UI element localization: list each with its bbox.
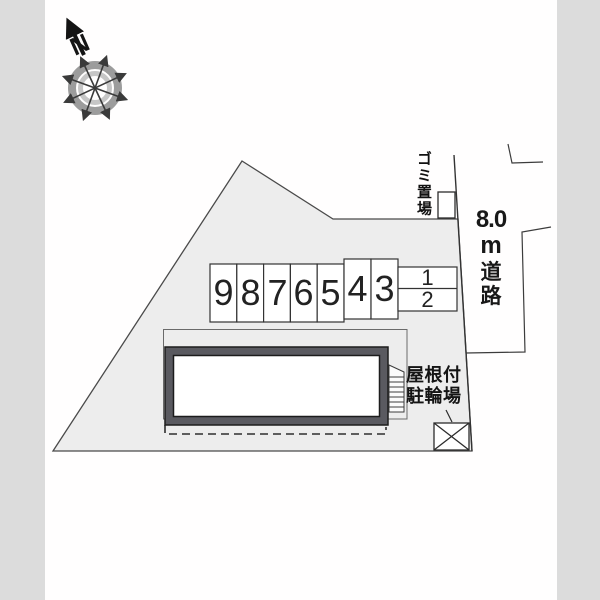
road-kanji-2: 路: [481, 286, 502, 307]
parking-space-label-5: 5: [317, 264, 344, 322]
parking-space-label-7: 7: [264, 264, 291, 322]
parking-space-label-1: 1: [398, 267, 457, 288]
parking-space-label-4: 4: [344, 259, 371, 319]
road-kanji-1: 道: [481, 262, 502, 283]
garbage-box: [438, 192, 455, 218]
utility-x-box: [434, 423, 469, 450]
bike-shed-label-line2: 駐輪場: [406, 386, 462, 407]
building-interior: [174, 356, 380, 417]
bike-shed-label: 屋根付 駐輪場: [406, 365, 462, 407]
parking-space-label-2: 2: [398, 289, 457, 310]
road-width-unit: m: [480, 234, 501, 258]
bike-shed-label-line1: 屋根付: [406, 365, 462, 386]
bike-shed-hatch: [389, 365, 404, 412]
parking-space-label-8: 8: [237, 264, 264, 322]
parking-space-label-3: 3: [371, 259, 398, 319]
road-width-label: 8.0 m 道 路: [472, 208, 510, 308]
garbage-area-label: ゴミ置場: [416, 151, 431, 221]
parking-space-label-6: 6: [290, 264, 317, 322]
road-width-number: 8.0: [476, 208, 506, 232]
site-plan-image: N 9 8 7 6 5 4 3 1 2 ゴミ置場 8.0 m 道 路 屋根付 駐…: [0, 0, 600, 600]
parking-space-label-9: 9: [210, 264, 237, 322]
compass-rose: [53, 23, 138, 130]
road-opposite-corner-top: [508, 144, 543, 163]
